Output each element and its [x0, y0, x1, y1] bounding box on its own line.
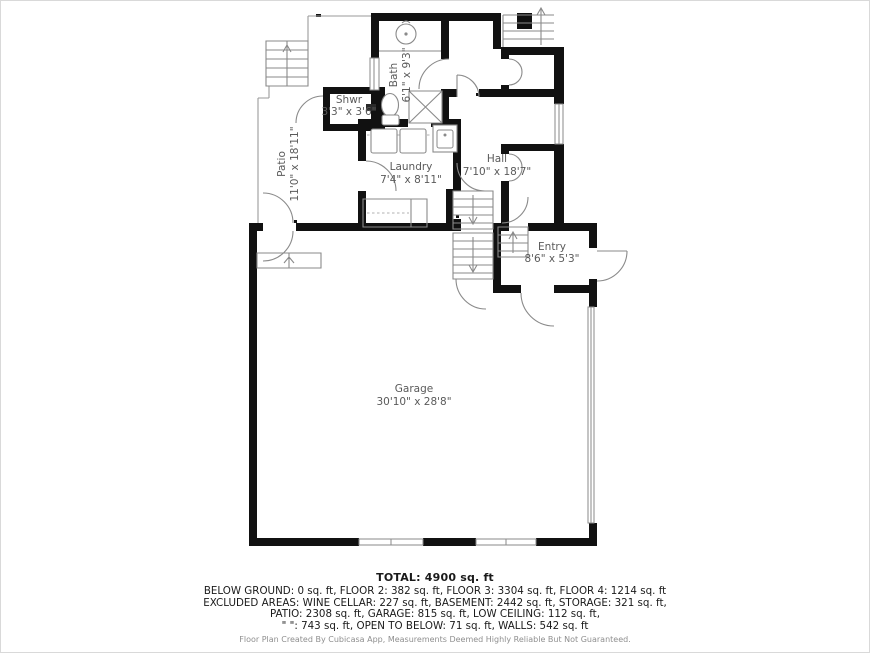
room-label-entry: Entry 8'6" x 5'3"	[524, 241, 579, 265]
room-name: Shwr	[336, 94, 363, 106]
total-area: TOTAL: 4900 sq. ft	[1, 571, 869, 584]
room-dims: 11'0" x 18'11"	[289, 126, 301, 201]
toilet-tank	[402, 21, 410, 23]
room-label-hall: Hall 7'10" x 18'7"	[463, 153, 531, 178]
room-label-patio: Patio 11'0" x 18'11"	[276, 126, 301, 201]
room-label-laundry: Laundry 7'4" x 8'11"	[380, 161, 442, 186]
floorplan-drawing: Bath 6'1" x 9'3" Shwr 3'3" x 3'6" Patio …	[1, 1, 870, 653]
room-name: Bath	[388, 63, 400, 87]
summary-line: " ": 743 sq. ft, OPEN TO BELOW: 71 sq. f…	[1, 621, 869, 633]
room-dims: 30'10" x 28'8"	[376, 396, 451, 408]
room-name: Patio	[276, 151, 288, 177]
washer-icon	[371, 129, 397, 153]
floorplan-page: Bath 6'1" x 9'3" Shwr 3'3" x 3'6" Patio …	[0, 0, 870, 653]
pedestal-sink-icon	[382, 94, 399, 117]
laundry-sink-basin	[437, 130, 453, 148]
room-name: Garage	[395, 383, 433, 395]
toilet-flush-dot	[404, 32, 407, 35]
room-dims: 6'1" x 9'3"	[401, 47, 413, 102]
laundry-sink-faucet-dot	[444, 134, 447, 137]
credit-line: Floor Plan Created By Cubicasa App, Meas…	[1, 635, 869, 644]
summary-line: BELOW GROUND: 0 sq. ft, FLOOR 2: 382 sq.…	[1, 586, 869, 598]
pedestal-sink-base	[382, 115, 399, 125]
room-dims: 7'4" x 8'11"	[380, 174, 442, 186]
area-summary: TOTAL: 4900 sq. ft BELOW GROUND: 0 sq. f…	[1, 571, 869, 633]
room-dims: 8'6" x 5'3"	[524, 253, 579, 265]
room-name: Hall	[487, 153, 507, 165]
patio-outline	[258, 16, 371, 223]
dryer-icon	[400, 129, 426, 153]
room-name: Entry	[538, 241, 566, 253]
room-dims: 7'10" x 18'7"	[463, 166, 531, 178]
room-label-garage: Garage 30'10" x 28'8"	[376, 383, 451, 408]
room-dims: 3'3" x 3'6"	[321, 106, 376, 118]
room-name: Laundry	[390, 161, 433, 173]
